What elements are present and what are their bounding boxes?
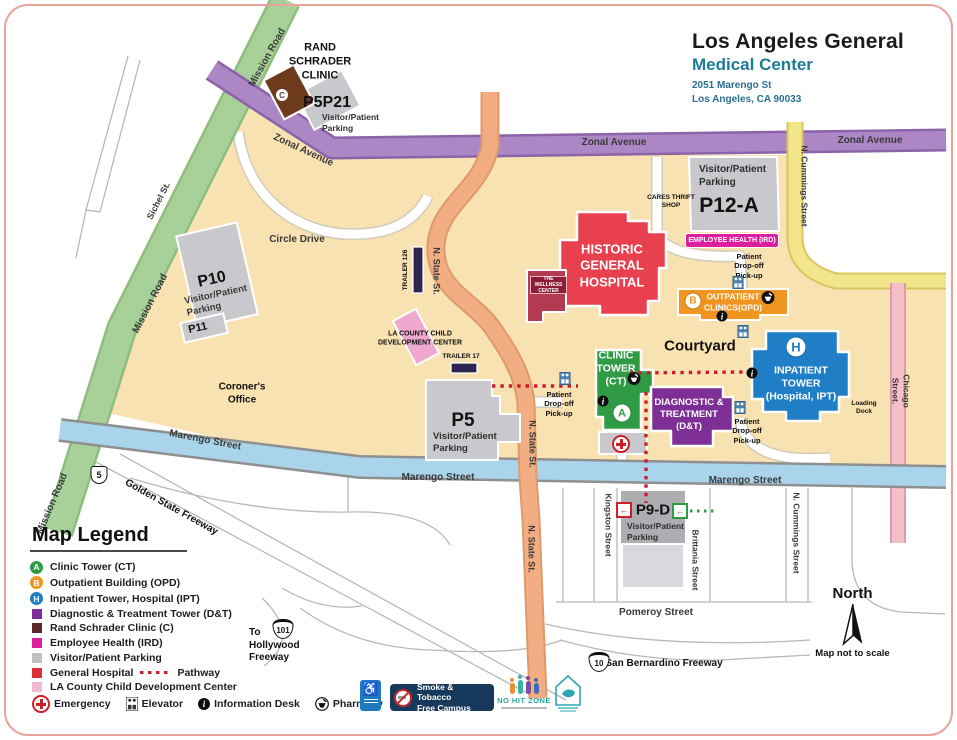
- street-label-san-bernardino: San Bernardino Freeway: [605, 658, 722, 671]
- legend-item-outpatient: B Outpatient Building (OPD): [30, 576, 300, 589]
- no-smoking-icon: [394, 689, 412, 707]
- p9d-entry-arrow-red-icon: ←: [616, 502, 632, 518]
- p9d-structure-lower: [622, 544, 684, 588]
- pharmacy-icon: [628, 372, 641, 390]
- elevator-icon: [733, 276, 744, 294]
- legend-swatch-dt: [32, 609, 42, 619]
- street-label-circle-drive: Circle Drive: [269, 234, 325, 247]
- trailer-126-label: TRAILER 126: [402, 250, 410, 291]
- p5p21-sub: Visitor/Patient Parking: [322, 112, 379, 133]
- legend-item-general-hospital-pathway: General Hospital Pathway: [30, 667, 300, 679]
- badge-a: A: [614, 405, 631, 422]
- campus-map: Los Angeles General Medical Center 2051 …: [0, 0, 957, 740]
- p9d-exit-arrow-green-icon: ←: [672, 503, 688, 519]
- elevator-icon: [735, 401, 746, 419]
- employee-health-building: EMPLOYEE HEALTH (IRD): [685, 233, 779, 248]
- accessible-parking-badge: ♿: [360, 680, 381, 711]
- legend-swatch-hospital: [32, 668, 42, 678]
- trailer-126-structure: [413, 247, 423, 293]
- street-label-nstate-1: N. State St.: [430, 247, 441, 295]
- information-desk-icon: i: [717, 311, 728, 322]
- street-label-marengo-3: Marengo Street: [709, 475, 782, 488]
- elevator-icon: [560, 372, 571, 390]
- dt-label: DIAGNOSTIC & TREATMENT (D&T): [654, 397, 723, 433]
- p12a-sub: Visitor/Patient Parking: [699, 164, 766, 189]
- trailer-17-structure: [451, 363, 477, 373]
- legend-item-rand-schrader: Rand Schrader Clinic (C): [30, 622, 300, 634]
- legend-badge-a: A: [30, 561, 43, 574]
- loading-dock-label: Loading Dock: [851, 400, 876, 416]
- legend-badge-b: B: [30, 576, 43, 589]
- address: 2051 Marengo St Los Angeles, CA 90033: [692, 79, 942, 107]
- smoke-free-badge: Smoke & Tobacco Free Campus: [390, 684, 494, 711]
- map-legend: Map Legend A Clinic Tower (CT) B Outpati…: [30, 524, 300, 696]
- p9d-sub: Visitor/Patient Parking: [627, 521, 684, 542]
- north-arrow-icon: [838, 602, 868, 646]
- scale-note: Map not to scale: [800, 648, 905, 659]
- street-label-marengo-2: Marengo Street: [402, 472, 475, 485]
- legend-information-desk: i Information Desk: [198, 698, 300, 710]
- legend-emergency: Emergency: [32, 695, 111, 713]
- baby-safe-surrender-logo: [554, 674, 582, 719]
- legend-elevator: Elevator: [126, 697, 183, 711]
- legend-swatch-parking: [32, 653, 42, 663]
- legend-item-inpatient: H Inpatient Tower, Hospital (IPT): [30, 592, 300, 605]
- page-title: Los Angeles General: [692, 30, 942, 54]
- elevator-icon: [738, 325, 749, 343]
- street-label-zonal-3: Zonal Avenue: [838, 135, 903, 148]
- legend-item-employee-health: Employee Health (IRD): [30, 637, 300, 649]
- north-label: North: [800, 585, 905, 602]
- child-dev-label: LA COUNTY CHILD DEVELOPMENT CENTER: [378, 330, 462, 348]
- rand-schrader-label: RAND SCHRADER CLINIC: [289, 41, 351, 82]
- street-label-zonal-2: Zonal Avenue: [582, 137, 647, 150]
- page-subtitle: Medical Center: [692, 55, 942, 75]
- emergency-icon: [32, 695, 50, 713]
- legend-swatch-ird: [32, 638, 42, 648]
- street-label-cummings-1: N. Cummings Street: [799, 145, 810, 226]
- legend-item-parking: Visitor/Patient Parking: [30, 652, 300, 664]
- p12a-name: P12-A: [699, 193, 759, 219]
- information-desk-icon: i: [747, 368, 758, 379]
- map-header: Los Angeles General Medical Center 2051 …: [692, 30, 942, 107]
- p5-name: P5: [451, 409, 474, 433]
- legend-item-clinic-tower: A Clinic Tower (CT): [30, 561, 300, 574]
- p5-sub: Visitor/Patient Parking: [433, 431, 497, 455]
- street-label-nstate-2: N. State St.: [526, 420, 537, 468]
- no-hit-zone-logo: NO HIT ZONE: [496, 676, 552, 709]
- dropoff-label-dt: Patient Drop-off Pick-up: [732, 417, 762, 445]
- dropoff-label-clinic: Patient Drop-off Pick-up: [544, 390, 574, 418]
- elevator-icon: [126, 697, 138, 711]
- outpatient-label: OUTPATIENT CLINICS(OPD): [704, 291, 762, 312]
- legend-pathway-dots: [140, 671, 170, 675]
- people-icons: [496, 676, 552, 694]
- information-desk-icon: i: [598, 396, 609, 407]
- street-label-chicago: Chicago Street.: [890, 363, 911, 419]
- street-label-pomeroy: Pomeroy Street: [619, 607, 693, 620]
- historic-hospital-label: HISTORIC GENERAL HOSPITAL: [580, 242, 645, 291]
- street-label-nstate-3: N. State St.: [525, 525, 536, 573]
- legend-swatch-rand: [32, 623, 42, 633]
- freeway-shield-5: 5: [91, 466, 108, 484]
- p9d-name: P9-D: [636, 502, 670, 521]
- badge-h: H: [787, 338, 806, 357]
- legend-amenities-row: Emergency Elevator i Information Desk Ph…: [32, 695, 383, 713]
- cares-thrift-label: CARES THRIFT SHOP: [647, 194, 695, 210]
- compass: North Map not to scale: [800, 585, 905, 659]
- trailer-17-label: TRAILER 17: [442, 353, 479, 361]
- coroner-label: Coroner's Office: [219, 382, 266, 407]
- wellness-center-label: THE WELLNESS CENTER: [530, 276, 567, 294]
- badge-b: B: [686, 294, 701, 309]
- legend-swatch-child-dev: [32, 682, 42, 692]
- pharmacy-icon: [762, 291, 775, 309]
- inpatient-label: INPATIENT TOWER (Hospital, IPT): [766, 364, 837, 403]
- street-label-kingston: Kingston Street: [603, 493, 614, 556]
- wheelchair-icon: ♿: [362, 680, 378, 697]
- p5p21-name: P5P21: [303, 93, 351, 113]
- emergency-icon: [612, 435, 630, 453]
- pharmacy-icon: [315, 697, 329, 711]
- courtyard-label: Courtyard: [664, 338, 736, 357]
- badge-c: C: [276, 89, 288, 101]
- legend-item-child-dev: LA County Child Development Center: [30, 681, 300, 693]
- street-label-brittania: Brittania Street: [690, 530, 701, 591]
- information-desk-icon: i: [198, 698, 210, 710]
- legend-title: Map Legend: [30, 524, 187, 552]
- street-label-cummings-2: N. Cummings Street: [791, 492, 802, 573]
- legend-badge-h: H: [30, 592, 43, 605]
- legend-item-dt: Diagnostic & Treatment Tower (D&T): [30, 608, 300, 620]
